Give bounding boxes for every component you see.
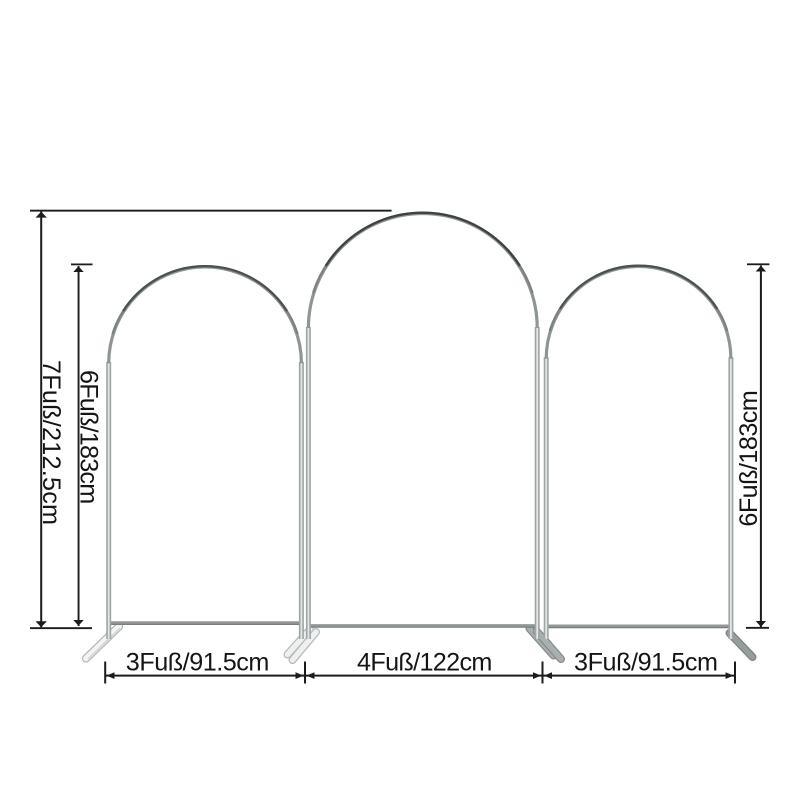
svg-text:3Fuß/91.5cm: 3Fuß/91.5cm — [126, 649, 270, 677]
svg-text:6Fuß/183cm: 6Fuß/183cm — [75, 370, 103, 504]
svg-text:3Fuß/91.5cm: 3Fuß/91.5cm — [574, 649, 718, 677]
svg-text:7Fuß/212.5cm: 7Fuß/212.5cm — [37, 360, 65, 525]
svg-text:4Fuß/122cm: 4Fuß/122cm — [357, 649, 492, 677]
svg-text:6Fuß/183cm: 6Fuß/183cm — [735, 390, 763, 526]
